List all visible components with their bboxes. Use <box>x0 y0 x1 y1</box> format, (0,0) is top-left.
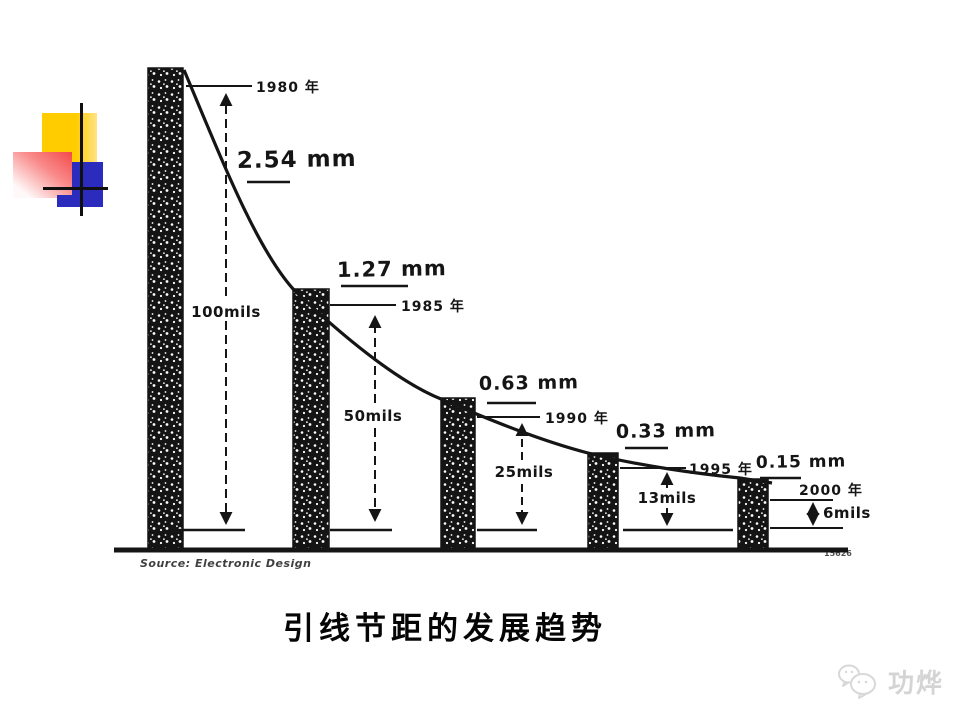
label-year-1990: 1990 年 <box>545 410 609 427</box>
slide-caption: 引线节距的发展趋势 <box>283 603 607 648</box>
label-mils-2000: 6mils <box>823 504 871 522</box>
label-year-1985: 1985 年 <box>401 298 465 315</box>
figure-code: 15626 <box>824 549 852 558</box>
label-mm-1980: 2.54 mm <box>237 146 357 174</box>
watermark-text: 功烨 <box>888 663 944 700</box>
dim-2000: 2000 年 0.15 mm 6mils <box>756 451 871 528</box>
label-mm-1990: 0.63 mm <box>479 371 579 395</box>
label-mils-1995: 13mils <box>638 489 697 507</box>
label-year-1980: 1980 年 <box>256 79 320 96</box>
bar-1980 <box>148 68 183 550</box>
label-mils-1985: 50mils <box>344 407 403 425</box>
watermark: 功烨 <box>836 662 944 700</box>
label-year-2000: 2000 年 <box>799 482 863 499</box>
chart-source: Source: Electronic Design <box>140 557 312 570</box>
chat-bubbles-icon <box>836 662 882 700</box>
label-year-1995: 1995 年 <box>689 461 753 478</box>
slide: 1980 年 2.54 mm 100mils 1985 年 1.27 mm 50… <box>0 0 960 720</box>
label-mm-1985: 1.27 mm <box>337 256 447 282</box>
label-mils-1990: 25mils <box>495 463 554 481</box>
label-mm-1995: 0.33 mm <box>616 419 716 443</box>
label-mm-2000: 0.15 mm <box>756 451 847 473</box>
dim-1995: 1995 年 0.33 mm 13mils <box>616 419 753 530</box>
bar-2000 <box>738 479 768 550</box>
bar-1995 <box>588 453 618 550</box>
bar-1990 <box>441 398 475 550</box>
label-mils-1980: 100mils <box>191 303 261 321</box>
bar-1985 <box>293 289 329 550</box>
